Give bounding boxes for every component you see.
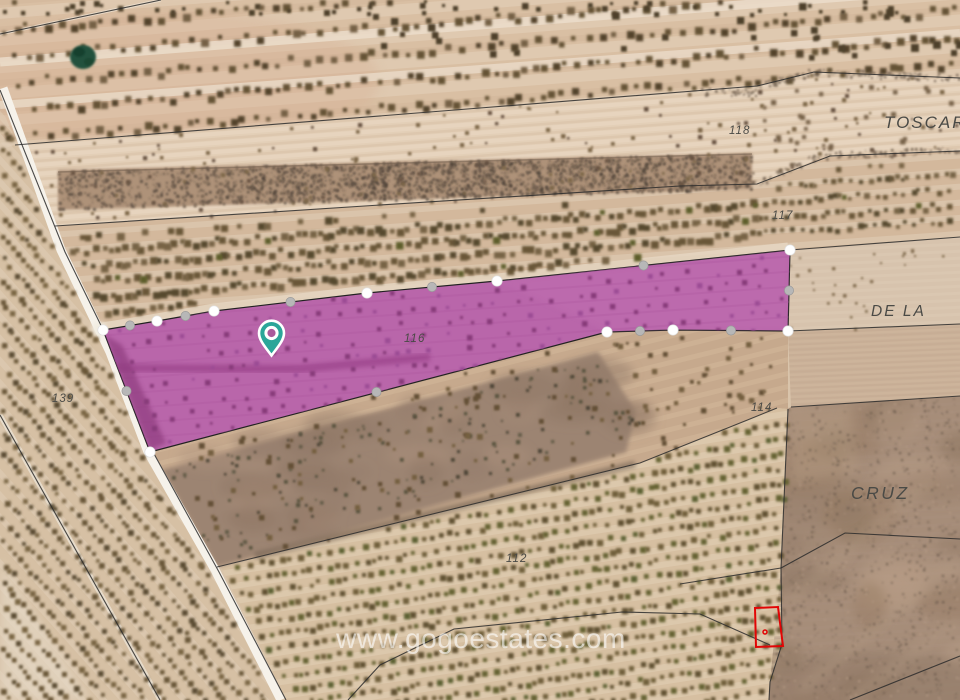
svg-text:www.gogoestates.com: www.gogoestates.com bbox=[335, 623, 626, 654]
svg-text:DE LA: DE LA bbox=[871, 303, 926, 320]
svg-text:117: 117 bbox=[772, 210, 793, 222]
svg-text:116: 116 bbox=[404, 333, 425, 345]
svg-text:112: 112 bbox=[506, 553, 527, 565]
svg-text:TOSCARE: TOSCARE bbox=[884, 113, 960, 132]
svg-text:CRUZ: CRUZ bbox=[851, 483, 910, 503]
svg-text:114: 114 bbox=[751, 402, 772, 414]
svg-text:139: 139 bbox=[52, 393, 74, 405]
svg-text:118: 118 bbox=[729, 125, 750, 137]
